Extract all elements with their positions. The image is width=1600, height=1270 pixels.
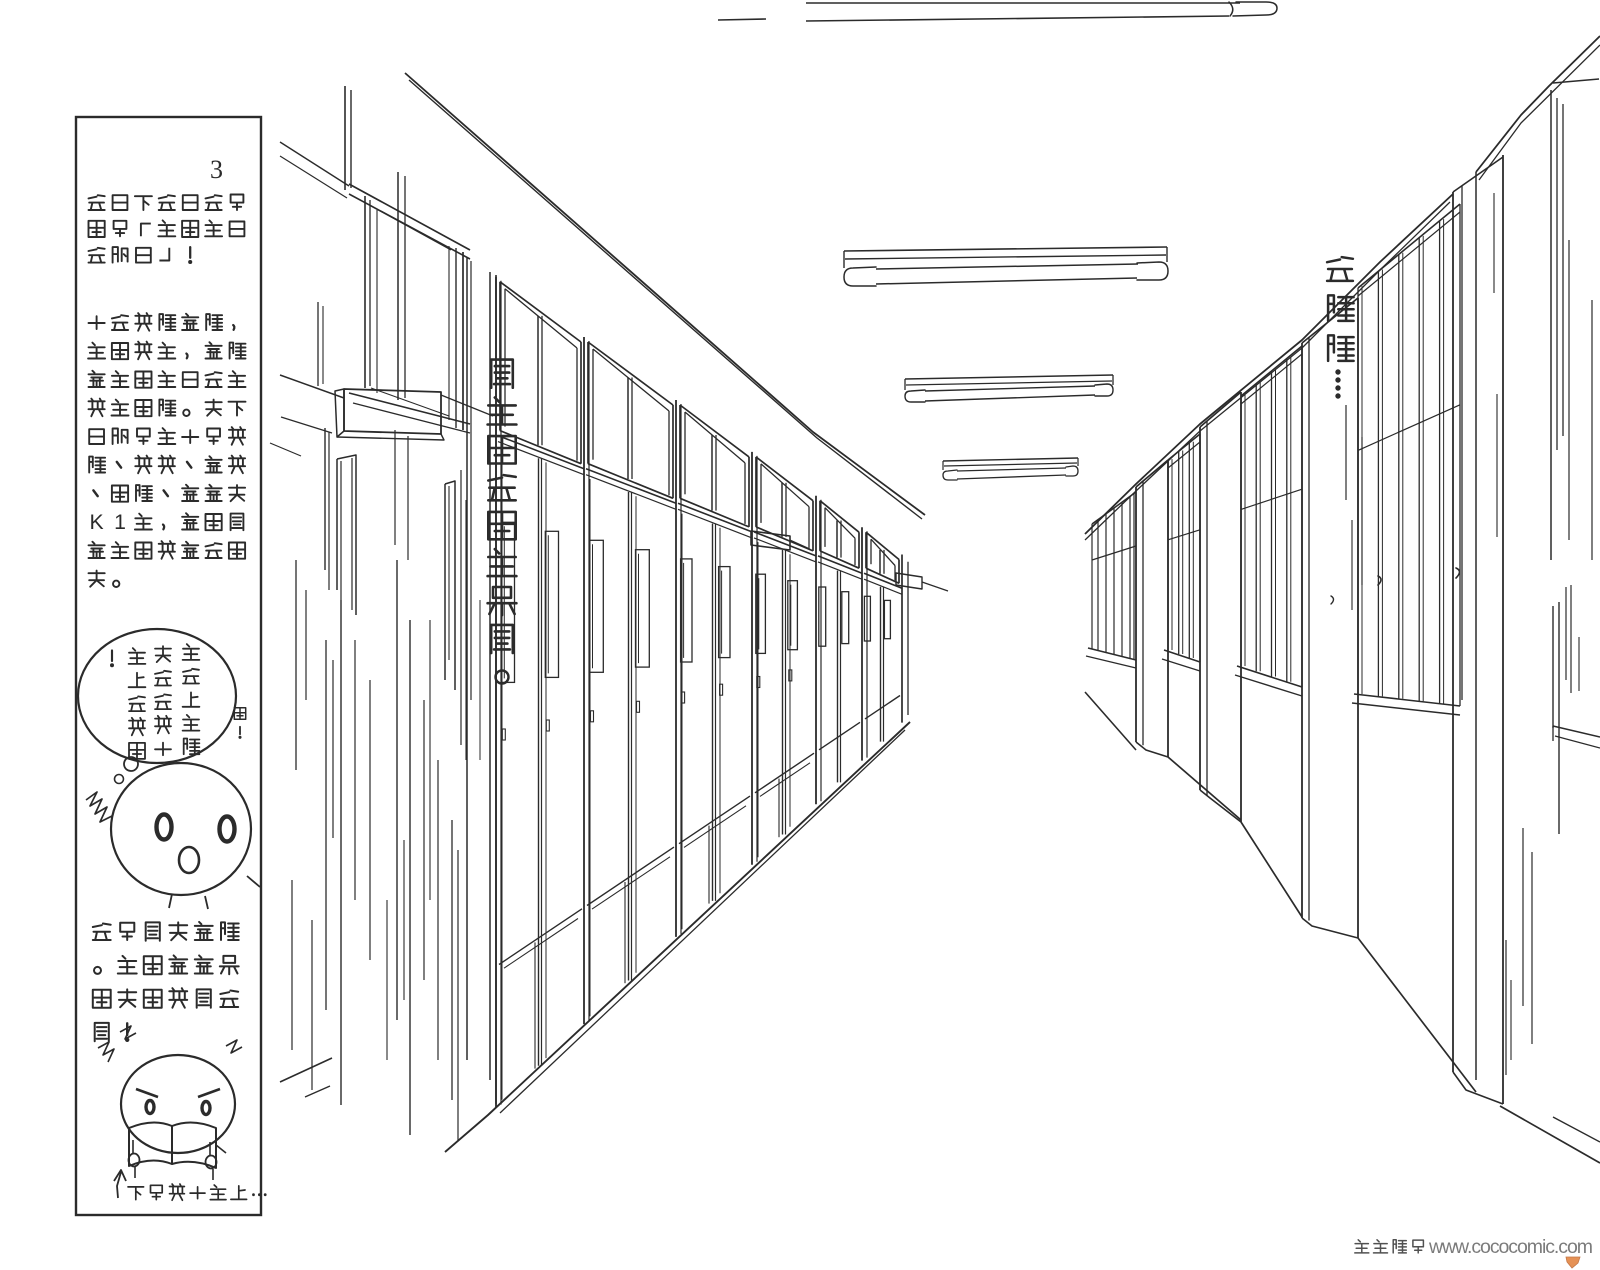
svg-text:1: 1 [114,511,126,534]
svg-text:K: K [90,511,104,534]
svg-text:3: 3 [210,155,223,184]
svg-text:www.cococomic.com: www.cococomic.com [1428,1236,1593,1258]
